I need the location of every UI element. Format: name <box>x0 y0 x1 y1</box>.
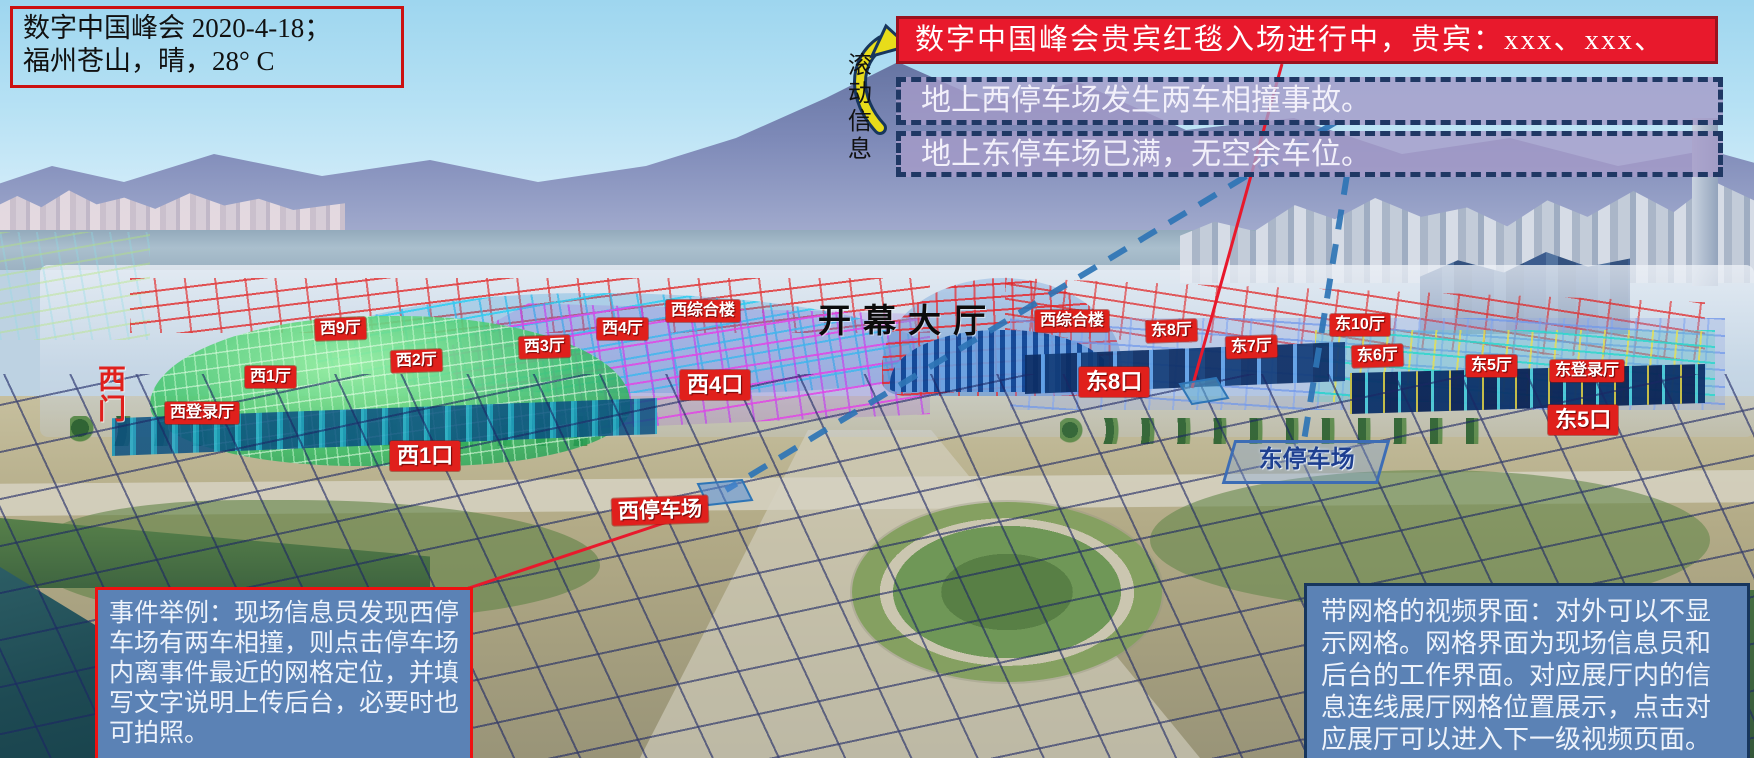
west-parking-label[interactable]: 西停车场 <box>612 495 709 525</box>
east-parking-label[interactable]: 东停车场 <box>1222 440 1391 484</box>
hall-label-west-2[interactable]: 西2厅 <box>391 349 443 373</box>
hall-label-west-complex[interactable]: 西综合楼 <box>666 300 740 322</box>
hall-label-east-7[interactable]: 东7厅 <box>1226 335 1278 359</box>
gate-label-west-1[interactable]: 西1口 <box>390 441 460 471</box>
hall-label-east-8[interactable]: 东8厅 <box>1146 319 1198 343</box>
event-title: 数字中国峰会 2020-4-18； <box>23 12 391 45</box>
east-parking-label-text: 东停车场 <box>1232 443 1382 477</box>
gate-label-east-8[interactable]: 东8口 <box>1079 367 1149 397</box>
gate-label-east-5[interactable]: 东5口 <box>1548 405 1618 435</box>
venue-aerial-view: 西9厅 西2厅 西1厅 西3厅 西4厅 西综合楼 西登录厅 西综合楼 东8厅 东… <box>0 0 1754 758</box>
event-info-box: 数字中国峰会 2020-4-18； 福州苍山，晴，28° C <box>10 6 404 88</box>
hall-label-east-10[interactable]: 东10厅 <box>1330 314 1390 336</box>
hall-label-east-6[interactable]: 东6厅 <box>1352 344 1404 368</box>
vip-ticker-banner: 数字中国峰会贵宾红毯入场进行中，贵宾：xxx、xxx、 <box>896 16 1718 64</box>
hall-label-west-1[interactable]: 西1厅 <box>245 366 296 388</box>
hall-label-east-login[interactable]: 东登录厅 <box>1550 360 1624 382</box>
scroll-info-label: 滚动信息 <box>843 52 869 164</box>
hall-label-east-5[interactable]: 东5厅 <box>1466 355 1517 377</box>
hall-label-west-3[interactable]: 西3厅 <box>519 335 571 359</box>
west-gate-label[interactable]: 西门 <box>96 364 124 424</box>
grid-interface-note: 带网格的视频界面：对外可以不显示网格。网格界面为现场信息员和后台的工作界面。对应… <box>1304 583 1750 758</box>
event-location-weather: 福州苍山，晴，28° C <box>23 45 391 78</box>
gate-label-west-4[interactable]: 西4口 <box>680 370 750 400</box>
hall-label-west-complex-east[interactable]: 西综合楼 <box>1035 310 1109 332</box>
opening-hall-title[interactable]: 开幕大厅 <box>818 294 998 342</box>
east-parking-alert: 地上东停车场已满，无空余车位。 <box>896 131 1723 177</box>
hall-label-west-4[interactable]: 西4厅 <box>597 318 648 340</box>
west-parking-alert: 地上西停车场发生两车相撞事故。 <box>896 77 1723 125</box>
far-west-grid-overlay <box>0 232 150 340</box>
event-example-note: 事件举例：现场信息员发现西停车场有两车相撞，则点击停车场内离事件最近的网格定位，… <box>95 587 473 758</box>
hall-label-west-9[interactable]: 西9厅 <box>315 317 367 341</box>
hall-label-west-login[interactable]: 西登录厅 <box>165 402 239 424</box>
